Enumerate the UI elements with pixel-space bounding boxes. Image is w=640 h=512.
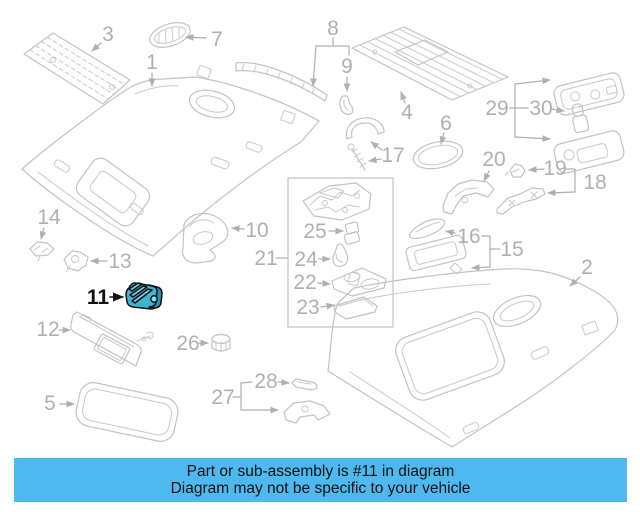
part-26-cap [212, 335, 230, 353]
callout-15-label: 15 [500, 238, 523, 261]
callout-28-label: 28 [254, 370, 277, 393]
callout-22: 22 [293, 271, 330, 294]
callout-8-label: 8 [327, 17, 339, 40]
part-13-clip [64, 251, 88, 272]
callout-3: 3 [92, 23, 114, 51]
banner-line-1: Part or sub-assembly is #11 in diagram [187, 463, 455, 481]
callout-20: 20 [482, 148, 505, 181]
callout-10: 10 [232, 219, 269, 242]
callout-9: 9 [341, 55, 353, 91]
callout-14: 14 [37, 206, 61, 239]
callout-11-highlighted: 11 [87, 286, 123, 309]
callout-12: 12 [36, 318, 70, 341]
callout-5-label: 5 [44, 392, 56, 415]
part-4-insulation-pad [352, 27, 508, 100]
callout-17: 17 [369, 142, 405, 167]
callout-23: 23 [296, 296, 334, 319]
callout-24-label: 24 [294, 248, 318, 271]
part-6-oval-seal [411, 137, 465, 173]
callout-6-label: 6 [440, 112, 452, 135]
callout-22-label: 22 [293, 271, 316, 294]
diagram-canvas: 1 2 3 4 5 6 7 8 9 10 11 12 [0, 0, 640, 512]
callout-2-label: 2 [581, 256, 593, 279]
callout-7: 7 [186, 28, 223, 51]
info-banner: Part or sub-assembly is #11 in diagram D… [14, 458, 627, 502]
callout-25-label: 25 [303, 220, 326, 243]
part-25-bulb-socket [344, 222, 360, 245]
part-18-rail-bracket [497, 188, 545, 214]
callout-20-label: 20 [482, 148, 505, 171]
part-1-headliner-front [22, 65, 319, 256]
part-12-sun-visor [71, 312, 153, 366]
callout-1-label: 1 [146, 51, 158, 74]
callout-24: 24 [294, 248, 330, 271]
part-29-reading-lamp-top [552, 71, 625, 117]
part-30-bulb [570, 103, 590, 133]
callout-21: 21 [254, 247, 288, 270]
part-22-lens-housing [332, 268, 386, 296]
part-28-bulb [292, 379, 317, 390]
callout-3-label: 3 [102, 23, 114, 46]
callout-11-label: 11 [87, 286, 110, 309]
callout-14-label: 14 [37, 206, 61, 229]
callout-21-label: 21 [254, 247, 277, 270]
part-21-dome-light-assembly [303, 183, 371, 220]
callout-27-label: 27 [211, 386, 234, 409]
callout-19: 19 [529, 157, 567, 180]
callout-19-label: 19 [543, 157, 566, 180]
callout-30: 30 [529, 97, 564, 120]
part-14-clip [30, 242, 54, 261]
part-27-lamp-holder [284, 401, 330, 423]
parts-diagram-page: { "banner": { "line1": "Part or sub-asse… [0, 0, 640, 512]
part-5-mirror-frame [74, 380, 181, 444]
callout-7-label: 7 [211, 28, 223, 51]
callout-25: 25 [303, 220, 343, 243]
part-16-bulb [409, 219, 444, 238]
callout-6: 6 [440, 112, 452, 144]
callout-16-label: 16 [457, 225, 480, 248]
callout-12-label: 12 [36, 318, 59, 341]
callout-18-label: 18 [583, 171, 606, 194]
part-7-oval-pad [147, 18, 194, 52]
part-9-hook [340, 96, 353, 114]
part-17-grab-handle [346, 118, 384, 170]
callout-10-label: 10 [245, 219, 268, 242]
callout-17-label: 17 [381, 144, 404, 167]
callout-4-label: 4 [401, 101, 413, 124]
part-20-bracket [443, 180, 494, 214]
callout-5: 5 [44, 392, 74, 415]
callout-30-label: 30 [529, 97, 552, 120]
callout-26: 26 [176, 332, 208, 355]
callout-2: 2 [570, 256, 593, 286]
callout-29-label: 29 [485, 97, 508, 120]
part-11-visor-clip-highlighted [126, 283, 162, 309]
part-24-bulb [333, 244, 348, 266]
callout-23-label: 23 [296, 296, 319, 319]
part-2-headliner-rear [328, 269, 618, 447]
callout-28: 28 [254, 370, 289, 393]
part-19-clip [505, 164, 525, 177]
part-3-insulation-pad [24, 33, 130, 104]
callout-4: 4 [401, 92, 413, 124]
callout-9-label: 9 [341, 55, 353, 78]
callout-26-label: 26 [176, 332, 199, 355]
callout-13: 13 [91, 250, 132, 273]
part-10-trim [183, 213, 228, 263]
banner-line-2: Diagram may not be specific to your vehi… [171, 480, 471, 498]
callout-13-label: 13 [108, 250, 131, 273]
